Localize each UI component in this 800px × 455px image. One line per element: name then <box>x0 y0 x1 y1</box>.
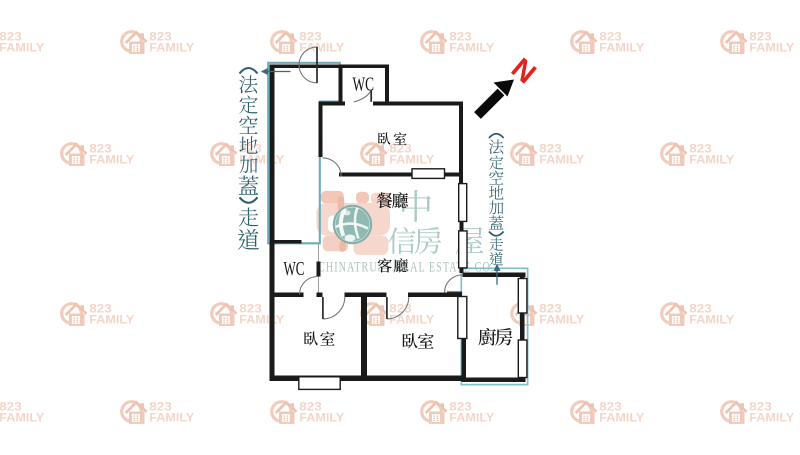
svg-text:WC: WC <box>284 259 305 280</box>
svg-text:WC: WC <box>353 75 375 96</box>
